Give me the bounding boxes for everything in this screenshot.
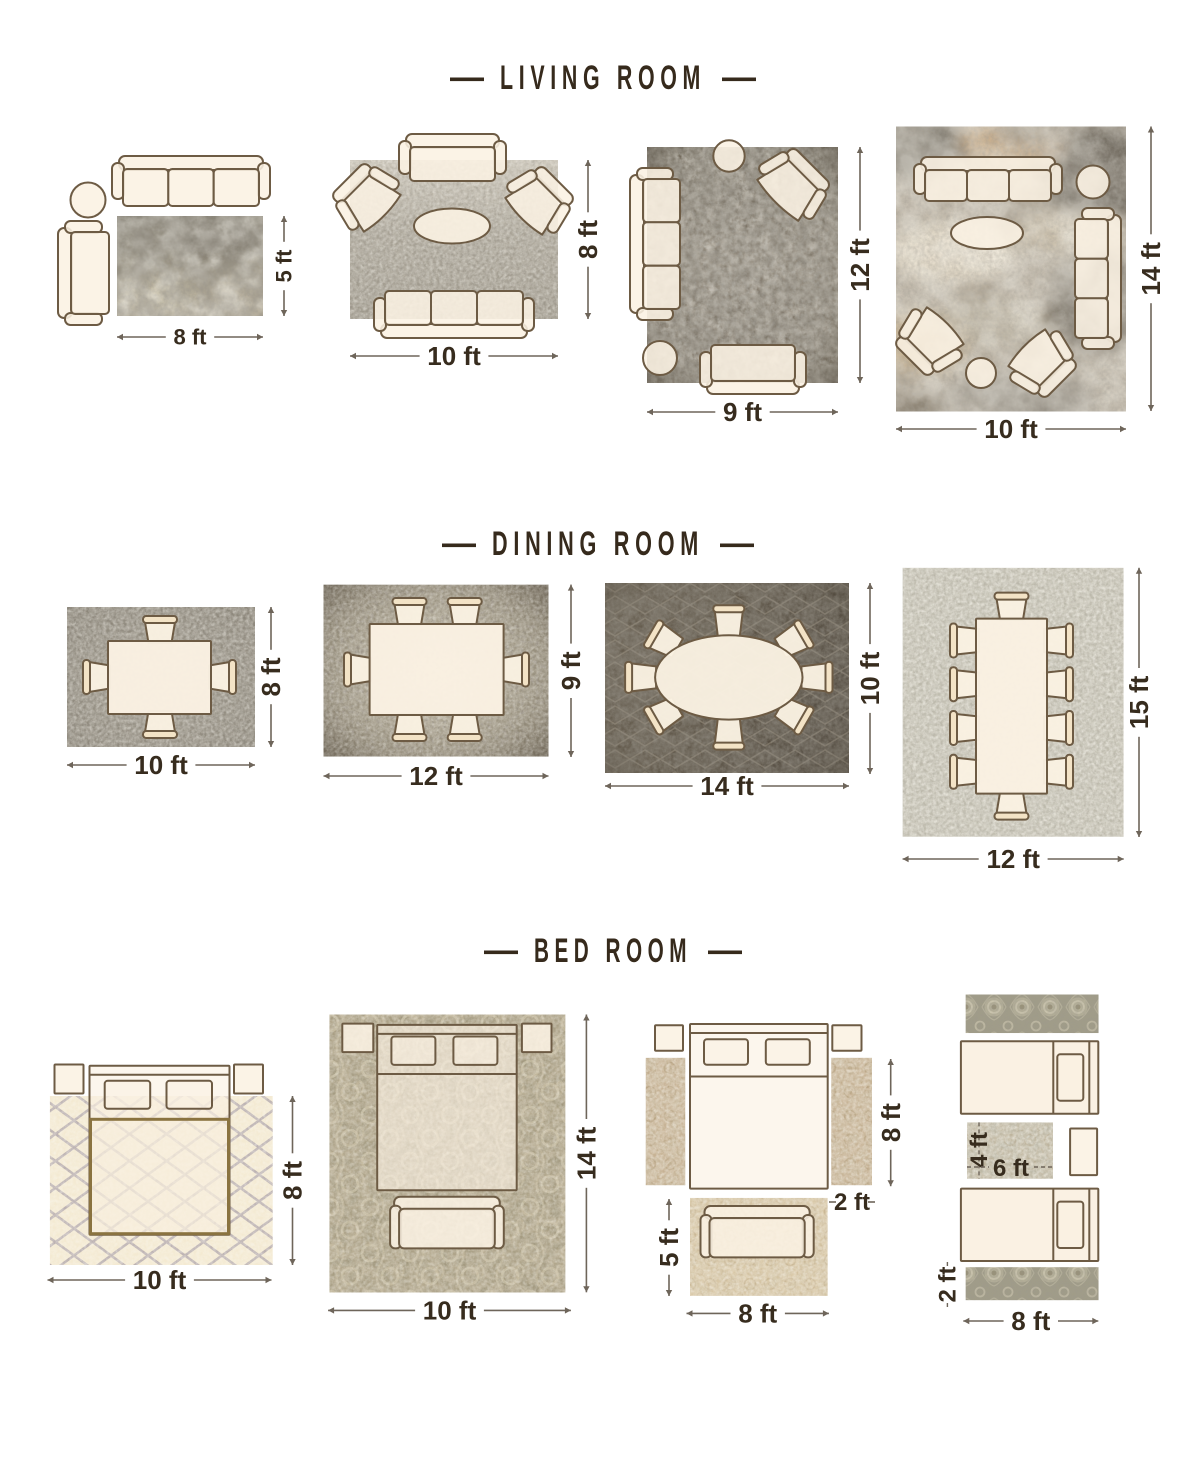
svg-text:10 ft: 10 ft [134, 750, 188, 780]
svg-text:5 ft: 5 ft [654, 1228, 684, 1267]
svg-text:12 ft: 12 ft [986, 844, 1040, 874]
svg-text:8 ft: 8 ft [278, 1161, 308, 1200]
svg-text:BED ROOM: BED ROOM [534, 932, 692, 970]
svg-text:9 ft: 9 ft [723, 397, 762, 427]
svg-text:2 ft: 2 ft [834, 1189, 870, 1216]
svg-text:15 ft: 15 ft [1124, 675, 1154, 729]
svg-text:12 ft: 12 ft [409, 761, 463, 791]
svg-text:10 ft: 10 ft [984, 414, 1038, 444]
svg-text:4 ft: 4 ft [966, 1132, 993, 1168]
svg-text:8 ft: 8 ft [876, 1103, 906, 1142]
svg-text:10 ft: 10 ft [133, 1265, 187, 1295]
svg-text:2 ft: 2 ft [934, 1266, 961, 1302]
svg-text:DINING ROOM: DINING ROOM [492, 525, 704, 563]
svg-text:8 ft: 8 ft [1011, 1306, 1050, 1336]
svg-text:5 ft: 5 ft [272, 249, 297, 283]
svg-text:14 ft: 14 ft [700, 771, 754, 801]
svg-text:10 ft: 10 ft [855, 651, 885, 705]
svg-text:10 ft: 10 ft [427, 341, 481, 371]
svg-text:14 ft: 14 ft [1136, 242, 1166, 296]
svg-text:8 ft: 8 ft [573, 220, 603, 259]
svg-text:8 ft: 8 ft [256, 657, 286, 696]
svg-text:12 ft: 12 ft [845, 238, 875, 292]
svg-text:LIVING ROOM: LIVING ROOM [500, 59, 706, 97]
svg-text:6 ft: 6 ft [993, 1155, 1029, 1182]
svg-text:14 ft: 14 ft [572, 1126, 602, 1180]
svg-text:10 ft: 10 ft [423, 1296, 477, 1326]
svg-text:8 ft: 8 ft [738, 1299, 777, 1329]
svg-text:9 ft: 9 ft [556, 651, 586, 690]
svg-text:8 ft: 8 ft [174, 325, 208, 350]
